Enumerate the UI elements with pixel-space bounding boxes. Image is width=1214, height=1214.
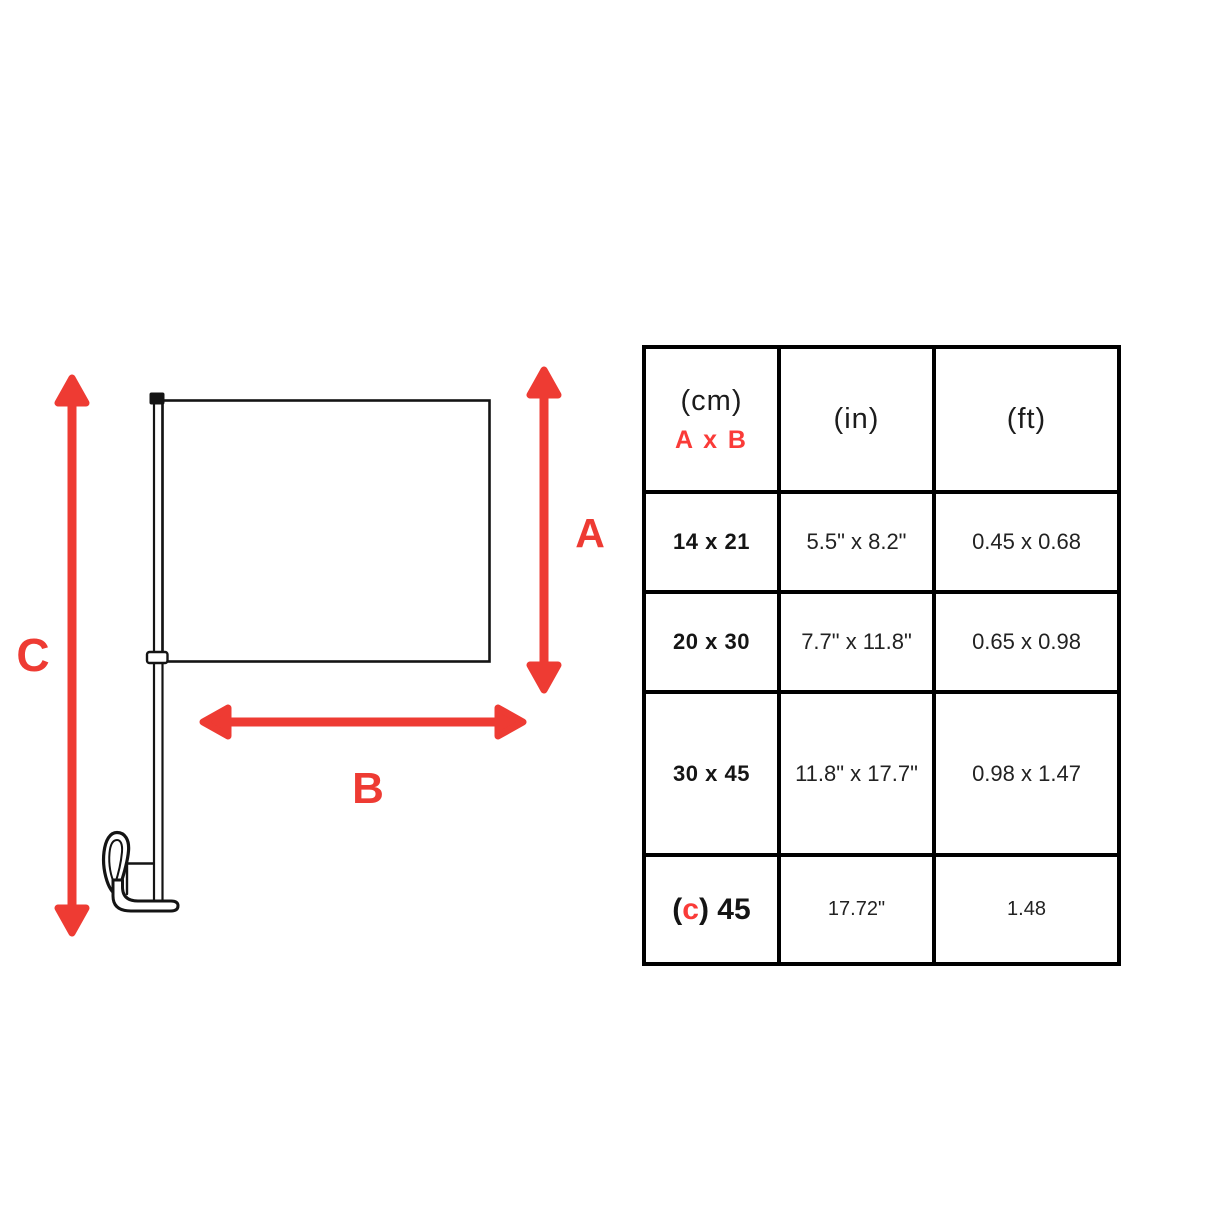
flag-panel <box>163 401 490 662</box>
label-c: C <box>16 629 49 681</box>
pole-collar <box>147 652 168 663</box>
size-cm-cell: 14 x 21 <box>644 492 779 592</box>
header-in-label: (in) <box>781 403 932 436</box>
header-cm-label: (cm) <box>646 385 777 418</box>
c45-letter: c <box>682 893 699 926</box>
dimension-arrow-a <box>530 370 558 690</box>
label-a: A <box>575 510 605 556</box>
size-ft-cell: 0.45 x 0.68 <box>934 492 1119 592</box>
c45-prefix: ( <box>672 893 682 926</box>
table-row: (c) 45 17.72" 1.48 <box>644 855 1119 964</box>
header-cell-cm: (cm) A x B <box>644 347 779 492</box>
header-cell-ft: (ft) <box>934 347 1119 492</box>
car-flag-size-infographic: C A B (cm) A x B (in) <box>0 0 1214 1214</box>
label-b: B <box>352 764 384 813</box>
pole-cap <box>150 393 165 405</box>
dimension-arrow-b <box>203 708 523 736</box>
size-in-cell: 17.72" <box>779 855 934 964</box>
size-in-cell: 7.7" x 11.8" <box>779 592 934 692</box>
size-cm-cell: 30 x 45 <box>644 692 779 855</box>
window-clip <box>104 833 178 912</box>
car-flag-diagram: C A B <box>0 0 640 1214</box>
table-row: 30 x 45 11.8" x 17.7" 0.98 x 1.47 <box>644 692 1119 855</box>
header-cell-in: (in) <box>779 347 934 492</box>
size-in-cell: 5.5" x 8.2" <box>779 492 934 592</box>
size-ft-cell: 1.48 <box>934 855 1119 964</box>
size-in-cell: 11.8" x 17.7" <box>779 692 934 855</box>
dimension-arrow-c <box>58 378 86 933</box>
header-axb-label: A x B <box>646 426 777 455</box>
clip-base <box>113 880 178 911</box>
header-ft-label: (ft) <box>936 403 1117 436</box>
c45-suffix: ) 45 <box>699 893 751 926</box>
table-row: 14 x 21 5.5" x 8.2" 0.45 x 0.68 <box>644 492 1119 592</box>
size-table: (cm) A x B (in) (ft) 14 x 21 5.5" x 8.2"… <box>642 345 1121 966</box>
table-header-row: (cm) A x B (in) (ft) <box>644 347 1119 492</box>
size-ft-cell: 0.65 x 0.98 <box>934 592 1119 692</box>
size-ft-cell: 0.98 x 1.47 <box>934 692 1119 855</box>
table-row: 20 x 30 7.7" x 11.8" 0.65 x 0.98 <box>644 592 1119 692</box>
size-cm-cell: 20 x 30 <box>644 592 779 692</box>
size-cm-cell: (c) 45 <box>644 855 779 964</box>
